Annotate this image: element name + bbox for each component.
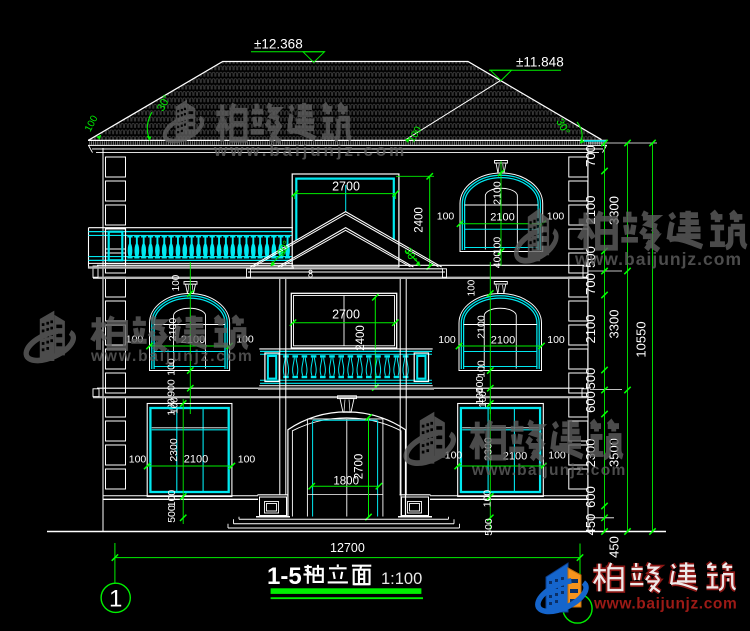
- svg-text:www.baijunjz.com: www.baijunjz.com: [471, 462, 627, 479]
- svg-text:2100: 2100: [583, 315, 598, 344]
- svg-text:1:100: 1:100: [381, 570, 422, 588]
- svg-text:100: 100: [467, 279, 478, 296]
- svg-text:2100: 2100: [490, 212, 514, 224]
- svg-text:900: 900: [166, 379, 178, 397]
- svg-text:500: 500: [166, 505, 178, 523]
- svg-text:700: 700: [583, 273, 598, 295]
- svg-text:2100: 2100: [476, 315, 488, 339]
- svg-text:100: 100: [166, 490, 178, 508]
- svg-text:2700: 2700: [332, 307, 360, 321]
- svg-text:100: 100: [170, 397, 181, 414]
- svg-text:100: 100: [238, 454, 256, 466]
- svg-text:2100: 2100: [492, 181, 504, 205]
- svg-text:12700: 12700: [330, 541, 365, 555]
- svg-text:100: 100: [547, 334, 565, 346]
- svg-text:2400: 2400: [355, 325, 367, 351]
- svg-text:100: 100: [478, 391, 489, 408]
- svg-text:3300: 3300: [607, 310, 622, 339]
- svg-text:±12.368: ±12.368: [254, 37, 303, 52]
- svg-text:1-5: 1-5: [267, 563, 302, 590]
- svg-text:www.baijunjz.com: www.baijunjz.com: [574, 249, 742, 269]
- svg-text:450: 450: [583, 514, 598, 536]
- svg-text:450: 450: [607, 536, 622, 558]
- svg-text:100: 100: [171, 274, 182, 291]
- svg-text:700: 700: [583, 145, 598, 167]
- svg-text:500: 500: [583, 368, 598, 390]
- svg-text:1: 1: [109, 586, 122, 613]
- svg-text:600: 600: [583, 391, 598, 413]
- svg-text:100: 100: [547, 211, 565, 223]
- svg-text:10550: 10550: [634, 321, 649, 357]
- svg-text:www.baijunjz.com: www.baijunjz.com: [213, 141, 407, 160]
- svg-text:www.baijunjz.com: www.baijunjz.com: [90, 348, 254, 365]
- svg-text:100: 100: [437, 211, 455, 223]
- svg-text:100: 100: [438, 334, 456, 346]
- svg-text:2700: 2700: [332, 179, 360, 193]
- svg-text:www.baijunjz.com: www.baijunjz.com: [593, 596, 737, 613]
- svg-text:600: 600: [583, 486, 598, 508]
- svg-text:2400: 2400: [413, 207, 425, 233]
- svg-text:2100: 2100: [184, 454, 208, 466]
- svg-text:±11.848: ±11.848: [516, 55, 564, 70]
- svg-text:2100: 2100: [491, 335, 515, 347]
- svg-text:100: 100: [129, 454, 147, 466]
- svg-text:100: 100: [476, 360, 488, 378]
- svg-text:400: 400: [492, 251, 504, 269]
- svg-text:2700: 2700: [353, 454, 365, 480]
- svg-text:2300: 2300: [168, 438, 180, 462]
- svg-text:500: 500: [483, 518, 495, 536]
- svg-text:100: 100: [482, 490, 494, 508]
